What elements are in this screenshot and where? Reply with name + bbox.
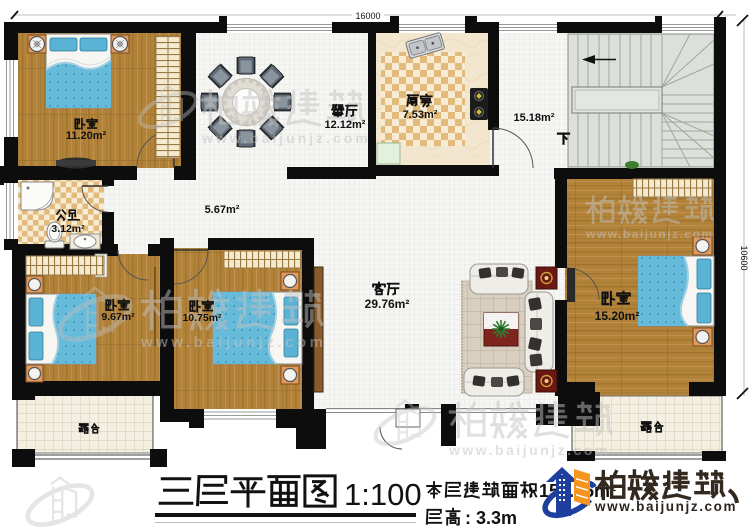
svg-text:www.baijunjz.com: www.baijunjz.com bbox=[448, 442, 610, 458]
svg-text:www.baijunjz.com: www.baijunjz.com bbox=[201, 130, 371, 146]
svg-text:9.67m²: 9.67m² bbox=[101, 311, 135, 323]
svg-text:7.53m²: 7.53m² bbox=[403, 109, 438, 121]
svg-text:29.76m²: 29.76m² bbox=[365, 297, 410, 311]
svg-text:15.20m²: 15.20m² bbox=[595, 309, 640, 323]
svg-text:1:100: 1:100 bbox=[344, 477, 422, 512]
svg-text:5.67m²: 5.67m² bbox=[205, 204, 240, 216]
svg-text:16000: 16000 bbox=[355, 11, 380, 21]
svg-text:3.12m²: 3.12m² bbox=[51, 223, 85, 235]
svg-text:www.baijunjz.com: www.baijunjz.com bbox=[140, 334, 326, 351]
svg-text:10600: 10600 bbox=[739, 245, 749, 270]
svg-text:: 3.3m: : 3.3m bbox=[465, 508, 517, 528]
svg-text:15.18m²: 15.18m² bbox=[514, 112, 555, 124]
svg-text:10.75m²: 10.75m² bbox=[182, 312, 222, 324]
svg-text:www.baijunjz.com: www.baijunjz.com bbox=[594, 499, 737, 514]
svg-text:www.baijunjz.com: www.baijunjz.com bbox=[585, 227, 714, 241]
svg-text:11.20m²: 11.20m² bbox=[66, 130, 107, 142]
svg-text:12.12m²: 12.12m² bbox=[325, 119, 366, 131]
